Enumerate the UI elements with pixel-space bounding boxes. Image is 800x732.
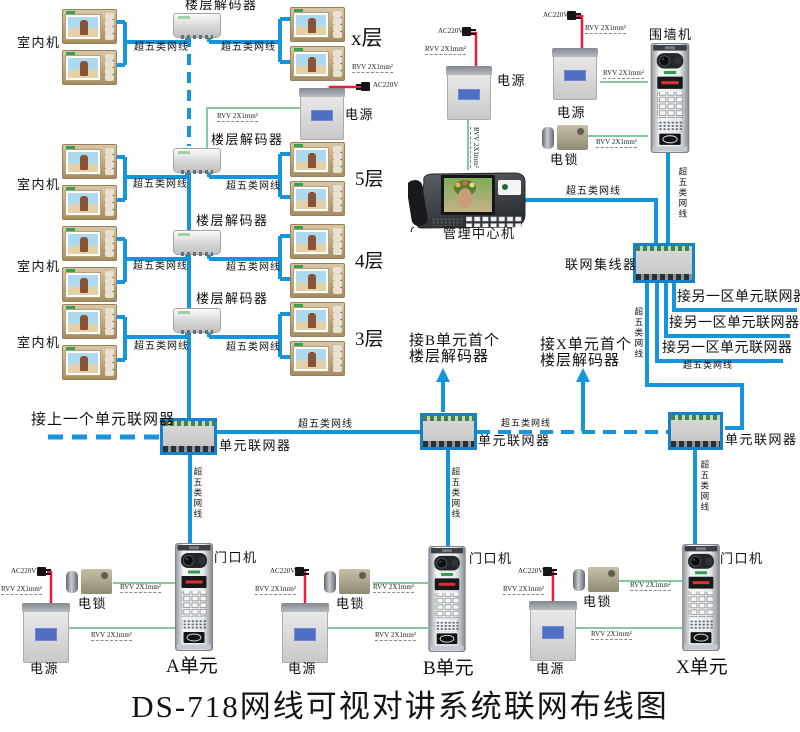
ac220v-label: AC220V bbox=[373, 82, 398, 89]
door-station-panel bbox=[175, 543, 213, 656]
to-x-unit-decoder-label: 接X单元首个楼层解码器 bbox=[540, 338, 632, 370]
cat5-label: 超五类网线 bbox=[226, 343, 281, 354]
unit-networker-label: 单元联网器 bbox=[725, 433, 798, 447]
indoor-unit-label: 室内机 bbox=[17, 178, 61, 192]
floor-decoder-label: 楼层解码器 bbox=[196, 292, 269, 306]
monitor-screen bbox=[294, 13, 328, 37]
to-prev-unit-label: 接上一个单元联网器 bbox=[31, 413, 175, 429]
floor-decoder-label: 楼层解码器 bbox=[185, 0, 258, 12]
to-b-unit-decoder-label: 接B单元首个楼层解码器 bbox=[409, 334, 500, 366]
cat5-label: 超五类网线 bbox=[226, 263, 281, 274]
indoor-monitor bbox=[62, 144, 117, 179]
rvv-label: RVV 2X1mm² bbox=[603, 70, 644, 79]
ac220v-label: AC220V bbox=[270, 568, 295, 575]
electric-lock bbox=[66, 569, 113, 596]
indoor-monitor bbox=[62, 185, 117, 220]
rvv-label: RVV 2X1mm² bbox=[470, 127, 479, 168]
floor-label: 4层 bbox=[355, 252, 384, 272]
indoor-monitor bbox=[62, 226, 117, 261]
monitor-screen bbox=[66, 351, 100, 375]
power-label: 电源 bbox=[497, 74, 526, 88]
arrow-to-x-decoder bbox=[576, 368, 590, 382]
rvv-label: RVV 2X1mm² bbox=[255, 586, 296, 595]
rvv-label: RVV 2X1mm² bbox=[375, 632, 416, 641]
door-unit-label: 门口机 bbox=[720, 552, 764, 566]
network-hub-label: 联网集线器 bbox=[565, 258, 638, 272]
indoor-unit-label: 室内机 bbox=[17, 36, 61, 50]
monitor-screen bbox=[66, 150, 100, 174]
cat5-label-vertical: 超五类网线 bbox=[634, 307, 643, 360]
floor-decoder-label: 楼层解码器 bbox=[196, 214, 269, 228]
rvv-label: RVV 2X1mm² bbox=[585, 25, 626, 34]
ac-plug-icon bbox=[462, 27, 471, 36]
rvv-label: RVV 2X1mm² bbox=[373, 584, 414, 593]
cat5-label: 超五类网线 bbox=[501, 419, 551, 428]
to-other-zone-label: 接另一区单元联网器 bbox=[662, 342, 793, 357]
door-station-panel bbox=[682, 544, 720, 656]
to-other-zone-label: 接另一区单元联网器 bbox=[677, 291, 800, 306]
cat5-label-vertical: 超五类网线 bbox=[678, 167, 687, 220]
electric-lock bbox=[324, 569, 371, 596]
power-supply bbox=[300, 88, 344, 140]
power-supply bbox=[553, 48, 597, 100]
floor-decoder bbox=[173, 230, 221, 255]
cat5-label: 超五类网线 bbox=[134, 43, 189, 54]
perimeter-unit-label: 围墙机 bbox=[649, 28, 693, 42]
management-center-label: 管理中心机 bbox=[443, 227, 516, 241]
unit-networker-label: 单元联网器 bbox=[478, 434, 551, 448]
rvv-label: RVV 2X1mm² bbox=[120, 584, 161, 593]
power-supply bbox=[282, 603, 328, 663]
to-other-zone-label: 接另一区单元联网器 bbox=[669, 317, 800, 332]
rvv-label: RVV 2X1mm² bbox=[352, 64, 393, 73]
arrow-to-b-decoder bbox=[436, 368, 450, 382]
power-supply bbox=[530, 601, 576, 661]
indoor-monitor bbox=[62, 304, 117, 339]
electric-lock bbox=[573, 567, 620, 594]
monitor-screen bbox=[294, 52, 328, 76]
rvv-label: RVV 2X1mm² bbox=[630, 582, 671, 591]
unit-label: B单元 bbox=[423, 659, 474, 679]
door-station-panel bbox=[428, 546, 466, 657]
monitor-screen bbox=[66, 310, 100, 334]
ac-plug-icon bbox=[361, 82, 370, 91]
ac220v-label: AC220V bbox=[518, 568, 543, 575]
monitor-screen bbox=[294, 269, 328, 293]
unit-label: X单元 bbox=[676, 658, 728, 678]
cat5-label: 超五类网线 bbox=[133, 180, 188, 191]
cat5-label-vertical: 超五类网线 bbox=[700, 460, 709, 513]
monitor-screen bbox=[294, 187, 328, 211]
monitor-screen bbox=[294, 148, 328, 172]
floor-label: 3层 bbox=[355, 330, 384, 350]
monitor-screen bbox=[294, 347, 328, 371]
floor-decoder-label: 楼层解码器 bbox=[211, 133, 284, 147]
ac220v-label: AC220V bbox=[438, 28, 463, 35]
cat5-label: 超五类网线 bbox=[298, 420, 353, 431]
monitor-screen bbox=[66, 56, 100, 80]
indoor-monitor bbox=[62, 267, 117, 302]
ac-plug-icon bbox=[37, 567, 46, 576]
rvv-label: RVV 2X1mm² bbox=[425, 46, 466, 55]
floor-decoder bbox=[173, 13, 221, 38]
indoor-monitor bbox=[290, 224, 345, 259]
electric-lock bbox=[542, 125, 589, 152]
rvv-label: RVV 2X1mm² bbox=[591, 631, 632, 640]
unit-networker bbox=[420, 413, 477, 450]
indoor-unit-label: 室内机 bbox=[17, 336, 61, 350]
cat5-label: 超五类网线 bbox=[226, 182, 281, 193]
door-unit-label: 门口机 bbox=[214, 551, 258, 565]
ac-plug-icon bbox=[567, 11, 576, 20]
indoor-monitor bbox=[290, 181, 345, 216]
rvv-label: RVV 2X1mm² bbox=[503, 586, 544, 595]
power-label: 电源 bbox=[345, 108, 374, 122]
monitor-screen bbox=[294, 308, 328, 332]
indoor-monitor bbox=[62, 50, 117, 85]
indoor-monitor bbox=[290, 7, 345, 42]
lock-label: 电锁 bbox=[583, 595, 612, 609]
monitor-screen bbox=[66, 191, 100, 215]
power-label: 电源 bbox=[288, 662, 317, 676]
rvv-label: RVV 2X1mm² bbox=[596, 139, 637, 148]
cat5-label: 超五类网线 bbox=[133, 262, 188, 273]
floor-decoder bbox=[173, 148, 221, 173]
indoor-monitor bbox=[62, 345, 117, 380]
cat5-label: 超五类网线 bbox=[566, 187, 621, 198]
rvv-label: RVV 2X1mm² bbox=[1, 586, 42, 595]
power-label: 电源 bbox=[536, 662, 565, 676]
ac-plug-icon bbox=[543, 567, 552, 576]
power-supply bbox=[447, 66, 491, 120]
lock-label: 电锁 bbox=[550, 153, 579, 167]
rvv-label: RVV 2X1mm² bbox=[91, 632, 132, 641]
cat5-label-vertical: 超五类网线 bbox=[451, 467, 460, 520]
indoor-monitor bbox=[290, 142, 345, 177]
indoor-monitor bbox=[290, 302, 345, 337]
cat5-label-vertical: 超五类网线 bbox=[193, 467, 202, 520]
cat5-label: 超五类网线 bbox=[683, 361, 733, 370]
floor-label: x层 bbox=[351, 27, 383, 49]
floor-decoder bbox=[173, 308, 221, 333]
lock-label: 电锁 bbox=[78, 597, 107, 611]
monitor-screen bbox=[66, 15, 100, 39]
indoor-monitor bbox=[290, 341, 345, 376]
power-supply bbox=[23, 603, 69, 663]
ac220v-label: AC220V bbox=[11, 568, 36, 575]
monitor-screen bbox=[294, 230, 328, 254]
perimeter-unit-panel bbox=[648, 43, 692, 158]
lock-label: 电锁 bbox=[336, 597, 365, 611]
monitor-screen bbox=[66, 273, 100, 297]
ac220v-label: AC220V bbox=[543, 12, 568, 19]
network-hub bbox=[633, 243, 695, 283]
door-unit-label: 门口机 bbox=[469, 552, 513, 566]
rvv-label: RVV 2X1mm² bbox=[217, 113, 258, 122]
indoor-monitor bbox=[290, 46, 345, 81]
diagram-title: DS-718网线可视对讲系统联网布线图 bbox=[0, 691, 800, 724]
ac-plug-icon bbox=[295, 567, 304, 576]
cat5-label: 超五类网线 bbox=[221, 43, 276, 54]
unit-networker bbox=[668, 412, 723, 450]
indoor-unit-label: 室内机 bbox=[17, 260, 61, 274]
floor-label: 5层 bbox=[355, 170, 384, 190]
wiring-diagram: 楼层解码器 室内机 x层 超五类网线 超五类网线 楼层解码器 室内机 5层 超五… bbox=[0, 0, 800, 732]
monitor-screen bbox=[66, 232, 100, 256]
indoor-monitor bbox=[290, 263, 345, 298]
power-label: 电源 bbox=[557, 106, 586, 120]
unit-networker-label: 单元联网器 bbox=[219, 439, 292, 453]
cat5-label: 超五类网线 bbox=[134, 342, 189, 353]
indoor-monitor bbox=[62, 9, 117, 44]
unit-label: A单元 bbox=[166, 657, 218, 677]
power-label: 电源 bbox=[30, 662, 59, 676]
